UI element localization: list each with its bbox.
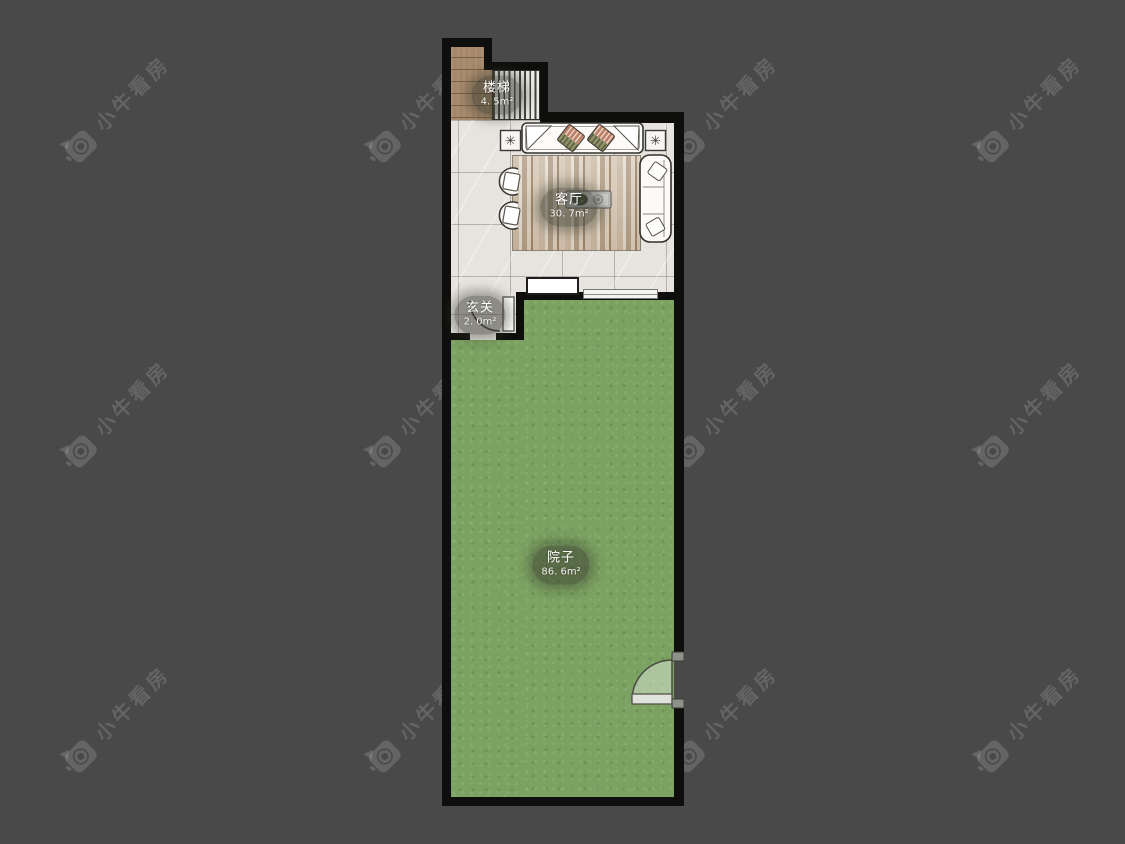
watermark: 小牛看房: [965, 656, 1089, 780]
sofa-main: [522, 123, 643, 153]
watermark: 小牛看房: [53, 46, 177, 170]
yard-gate-jamb-top: [672, 652, 684, 661]
camera-logo-icon: [53, 120, 102, 169]
floorplan: ✳ ✳: [440, 38, 684, 806]
room-name: 院子: [541, 551, 580, 567]
plant-icon: ✳: [650, 134, 661, 149]
armchair-bottom: [499, 202, 520, 229]
camera-logo-icon: [53, 425, 102, 474]
yard-gate: [632, 652, 684, 708]
yard-gate-jamb-bottom: [672, 699, 684, 708]
room-name: 玄关: [464, 301, 497, 317]
room-label-yard: 院子 86. 6m²: [532, 546, 589, 585]
side-table-right: ✳: [646, 131, 666, 151]
watermark: 小牛看房: [53, 656, 177, 780]
camera-logo-icon: [357, 425, 406, 474]
room-area: 4. 5m²: [481, 97, 514, 110]
armchair-top: [499, 168, 520, 195]
floorplan-screenshot: 小牛看房 小牛看房 小牛看房 小牛看房 小牛看房 小牛看房 小牛看房 小牛看房 …: [0, 0, 1125, 844]
room-area: 86. 6m²: [541, 567, 580, 580]
watermark-text: 小牛看房: [695, 658, 783, 746]
yard-gate-leaf: [632, 694, 672, 704]
camera-logo-icon: [357, 730, 406, 779]
side-table-left: ✳: [501, 131, 521, 151]
camera-logo-icon: [357, 120, 406, 169]
room-label-hall: 玄关 2. 0m²: [455, 296, 506, 335]
watermark: 小牛看房: [53, 351, 177, 475]
camera-logo-icon: [965, 120, 1014, 169]
sofa-chaise-right: [640, 155, 671, 242]
watermark: 小牛看房: [965, 46, 1089, 170]
room-area: 30. 7m²: [549, 209, 588, 222]
furniture-layer: ✳ ✳: [440, 38, 684, 806]
watermark-text: 小牛看房: [695, 353, 783, 441]
room-area: 2. 0m²: [464, 317, 497, 330]
watermark-text: 小牛看房: [999, 353, 1087, 441]
watermark-text: 小牛看房: [87, 48, 175, 136]
watermark-text: 小牛看房: [87, 353, 175, 441]
room-label-stairs: 楼梯 4. 5m²: [472, 76, 523, 115]
camera-logo-icon: [965, 730, 1014, 779]
room-label-living: 客厅 30. 7m²: [540, 188, 597, 227]
plant-icon: ✳: [505, 134, 516, 149]
room-name: 楼梯: [481, 81, 514, 97]
camera-logo-icon: [53, 730, 102, 779]
watermark-text: 小牛看房: [87, 658, 175, 746]
watermark: 小牛看房: [965, 351, 1089, 475]
watermark-text: 小牛看房: [695, 48, 783, 136]
camera-logo-icon: [965, 425, 1014, 474]
watermark-text: 小牛看房: [999, 48, 1087, 136]
watermark-text: 小牛看房: [999, 658, 1087, 746]
room-name: 客厅: [549, 193, 588, 209]
